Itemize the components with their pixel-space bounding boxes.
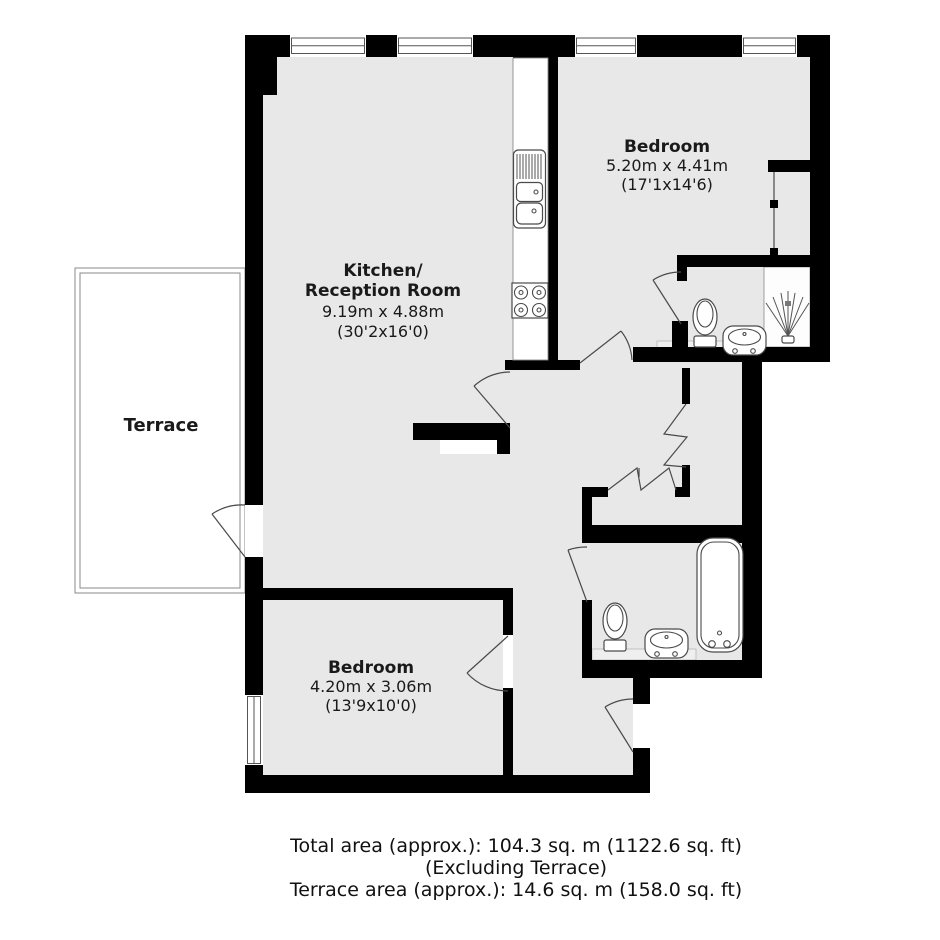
- closet-band-floor: [590, 497, 742, 527]
- bedroom2-label-dims-imperial: (13'9x10'0): [325, 696, 417, 715]
- window-icon: [245, 695, 263, 765]
- terrace-label: Terrace: [124, 415, 199, 436]
- area-summary: Total area (approx.): 104.3 sq. m (1122.…: [289, 835, 742, 901]
- terrace-area-text: Terrace area (approx.): 14.6 sq. m (158.…: [289, 879, 742, 901]
- floorplan-page: Kitchen/ Reception Room 9.19m x 4.88m (3…: [0, 0, 940, 940]
- kitchen-label-name1: Kitchen/: [343, 261, 423, 281]
- hob-icon: [512, 283, 548, 318]
- excluding-terrace-text: (Excluding Terrace): [425, 857, 607, 879]
- window-icon: [290, 35, 366, 57]
- kitchen-divider-wall: [548, 40, 558, 362]
- floor-plan: Kitchen/ Reception Room 9.19m x 4.88m (3…: [0, 0, 940, 940]
- bathtub-icon: [697, 538, 743, 652]
- toilet-icon: [693, 299, 717, 347]
- entrance-door-opening: [633, 704, 650, 748]
- bedroom2-label-dims-metric: 4.20m x 3.06m: [310, 677, 432, 696]
- toilet-icon: [603, 603, 627, 651]
- double-sink-icon: [517, 183, 543, 225]
- kitchen-label-name2: Reception Room: [305, 281, 461, 301]
- window-icon: [397, 35, 473, 57]
- bedroom2-label-name: Bedroom: [328, 658, 414, 678]
- kitchen-label-dims-imperial: (30'2x16'0): [337, 322, 429, 341]
- wall-recess: [440, 440, 497, 454]
- kitchen-label-dims-metric: 9.19m x 4.88m: [322, 302, 444, 321]
- bedroom1-label-dims-imperial: (17'1x14'6): [621, 175, 713, 194]
- kitchen-counter: [512, 58, 548, 360]
- window-icon: [742, 35, 797, 57]
- window-icon: [575, 35, 637, 57]
- bedroom1-label-dims-metric: 5.20m x 4.41m: [606, 156, 728, 175]
- terrace-door-opening: [245, 505, 263, 557]
- basin-icon: [645, 629, 688, 658]
- total-area-text: Total area (approx.): 104.3 sq. m (1122.…: [289, 835, 742, 857]
- bedroom1-label-name: Bedroom: [624, 137, 710, 157]
- basin-icon: [723, 326, 766, 355]
